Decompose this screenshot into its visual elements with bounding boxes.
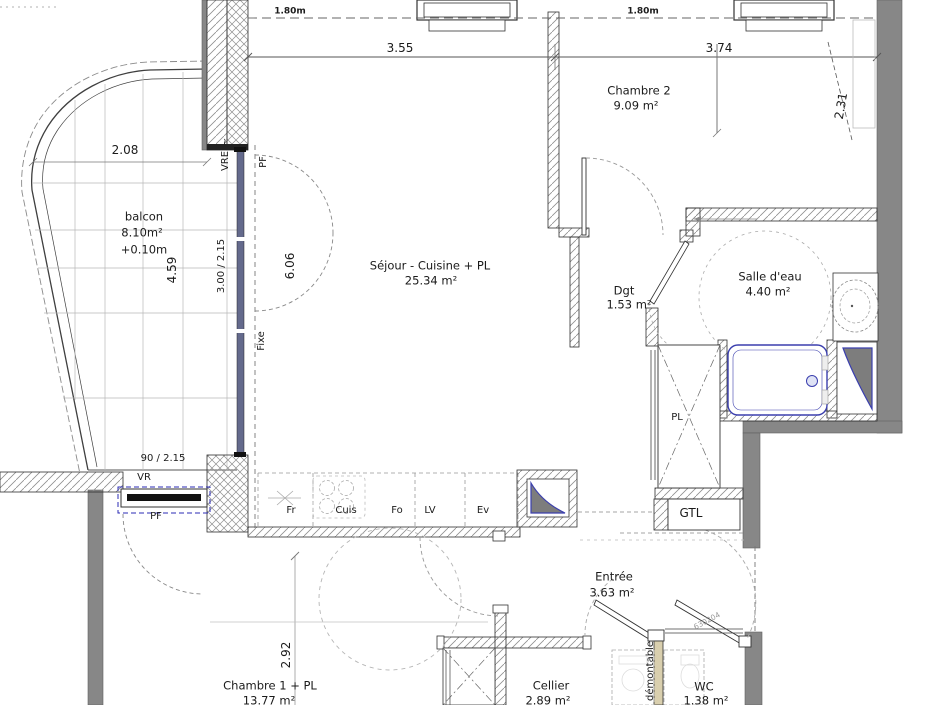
label-cooktop: Cuis <box>335 506 356 516</box>
label-fridge: Fr <box>286 506 295 516</box>
dim-chambre1-window: 90 / 2.15 <box>141 454 186 464</box>
dim-sejour-length: 6.06 <box>284 253 296 280</box>
dim-bay-window: 3.00 / 2.15 <box>217 239 227 293</box>
dim-chambre1-width: 2.92 <box>280 642 292 669</box>
room-sejour-area: 25.34 m² <box>405 275 457 287</box>
label-sink: Ev <box>477 506 489 516</box>
bay-window <box>234 147 246 457</box>
chambre2-wardrobe <box>853 20 875 128</box>
chambre1-window <box>118 487 210 513</box>
tag-vre-note: ~ <box>221 138 231 146</box>
kitchen-counter <box>258 473 518 527</box>
room-cellier-name: Cellier <box>533 680 570 692</box>
duct-kitchen <box>517 470 577 527</box>
room-chambre2-area: 9.09 m² <box>613 100 658 112</box>
balcony-dim-line <box>29 158 211 166</box>
room-entree-area: 3.63 m² <box>589 587 634 599</box>
note-partition: démontable <box>646 641 656 701</box>
label-pl: PL <box>671 413 683 423</box>
dim-balcon-depth: 4.59 <box>166 257 178 284</box>
tag-pf-chambre1: PF <box>150 512 162 522</box>
label-oven: Fo <box>391 506 403 516</box>
tag-vre: VRE <box>221 151 231 171</box>
washbasin <box>833 273 878 341</box>
room-dgt-name: Dgt <box>614 285 635 297</box>
room-chambre1-area: 13.77 m² <box>243 695 295 705</box>
room-sejour-name: Séjour - Cuisine + PL <box>370 260 490 272</box>
room-cellier-area: 2.89 m² <box>525 695 570 705</box>
tag-pf-bay: PF <box>259 156 269 168</box>
room-salle-eau-area: 4.40 m² <box>745 286 790 298</box>
floor-plan: 1.80m 1.80m 3.55 3.74 2.31 2.08 4.59 3.0… <box>0 0 940 705</box>
roof-window-right <box>734 0 834 31</box>
dim-sejour-width: 3.55 <box>387 42 414 54</box>
room-balcon-area: 8.10m² <box>121 227 162 239</box>
room-balcon-name: balcon <box>125 211 163 223</box>
room-chambre1-name: Chambre 1 + PL <box>223 680 317 692</box>
dim-chambre2-width: 3.74 <box>706 42 733 54</box>
room-dgt-area: 1.53 m² <box>606 299 651 311</box>
room-wc-area: 1.38 m² <box>683 695 728 705</box>
duct-bathroom <box>837 342 877 414</box>
dim-ceiling-right: 1.80m <box>627 8 659 17</box>
room-entree-name: Entrée <box>595 571 633 583</box>
closets <box>443 345 740 705</box>
roof-window-left <box>417 0 517 31</box>
dim-balcon-width: 2.08 <box>112 144 139 156</box>
label-dishwasher: LV <box>424 506 435 516</box>
tag-vr: VR <box>137 473 151 483</box>
room-chambre2-name: Chambre 2 <box>607 85 670 97</box>
sink-cross-icon <box>268 491 301 505</box>
room-balcon-level: +0.10m <box>121 244 167 256</box>
dim-ceiling-left: 1.80m <box>274 8 306 17</box>
floor-plan-drawing <box>0 0 940 705</box>
tag-fixe: Fixe <box>257 331 267 351</box>
shower-drain <box>807 376 818 387</box>
room-salle-eau-name: Salle d'eau <box>738 271 801 283</box>
room-wc-name: WC <box>694 681 713 693</box>
label-gtl: GTL <box>680 507 703 519</box>
